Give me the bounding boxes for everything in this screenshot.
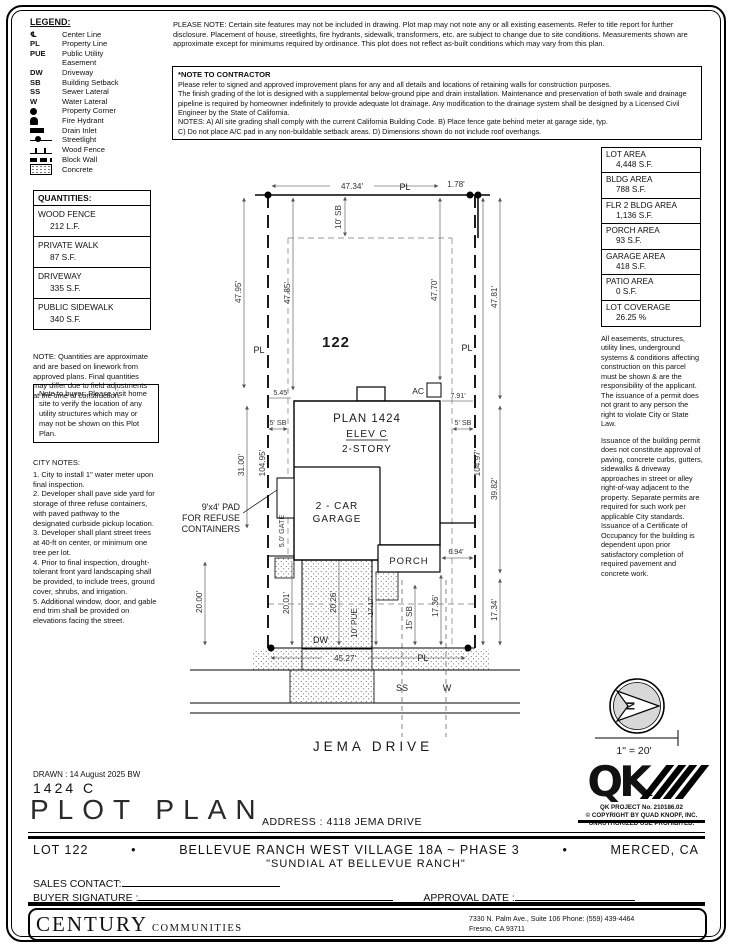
dim-porch-offset: 6.94'	[448, 547, 464, 556]
dim-front-setback-top: 10' SB	[334, 205, 343, 229]
builder-brand: CENTURY COMMUNITIES	[36, 912, 243, 937]
dim-right-mid: 39.82'	[490, 478, 499, 500]
qk-logo-block: QK QK PROJECT No. 210186.02 © COPYRIGHT …	[578, 760, 705, 827]
dim-left-mid: 31.00'	[237, 454, 246, 476]
street-name-label: JEMA DRIVE	[313, 739, 433, 754]
property-corner-dot	[467, 192, 474, 199]
refuse-pad-leader	[243, 490, 277, 513]
property-line-label: PL	[417, 653, 428, 663]
property-line-label: PL	[399, 182, 410, 192]
site-address: ADDRESS : 4118 JEMA DRIVE	[262, 816, 422, 828]
dim-left-offset: 5.45'	[273, 388, 289, 397]
property-line-label: PL	[461, 343, 472, 353]
divider	[28, 836, 705, 839]
north-arrow: N	[610, 679, 664, 733]
sheet-title: PLOT PLAN	[30, 794, 265, 826]
brand-secondary: COMMUNITIES	[152, 923, 243, 934]
lot-number-label: 122	[322, 334, 350, 351]
porch-label: PORCH	[389, 556, 428, 567]
north-label: N	[623, 702, 637, 711]
dim-left-outer: 47.95'	[234, 281, 243, 303]
property-corner-dot	[265, 192, 272, 199]
dim-side-setback-left: 5' SB	[270, 418, 287, 427]
dim-pue: 10' PUE	[350, 608, 359, 638]
dim-drive-width: 20.26'	[329, 591, 338, 613]
driveway-label: DW	[313, 635, 328, 645]
dim-drive-left: 20.01'	[282, 592, 291, 614]
dim-right-outer-top: 47.81'	[490, 286, 499, 308]
dim-gate: 5.0' GATE	[277, 515, 286, 548]
qk-divider	[578, 820, 705, 823]
garage-label: GARAGE	[313, 514, 362, 525]
dim-left-inner: 47.85'	[283, 282, 292, 304]
refuse-pad-label: FOR REFUSE	[182, 513, 240, 523]
refuse-pad-label: 9'x4' PAD	[202, 502, 241, 512]
brand-primary: CENTURY	[36, 912, 148, 937]
refuse-pad	[277, 478, 294, 518]
lot-label: LOT 122	[33, 843, 88, 857]
sales-contact-label: SALES CONTACT:	[33, 878, 122, 890]
city-label: MERCED, CA	[611, 843, 699, 857]
sales-contact-row: SALES CONTACT:	[33, 876, 280, 890]
qk-stripes-icon	[650, 765, 696, 799]
qk-copyright: © COPYRIGHT BY QUAD KNOPF, INC.	[578, 812, 705, 820]
builder-footer: CENTURY COMMUNITIES 7330 N. Palm Ave., S…	[28, 908, 707, 941]
dim-ac-offset: 7.91'	[450, 391, 466, 400]
dim-left-bottom: 20.00'	[195, 591, 204, 613]
divider	[28, 832, 705, 833]
refuse-pad-label: CONTAINERS	[182, 524, 240, 534]
dim-top-width: 47.34'	[341, 182, 363, 191]
plan-name-label: PLAN 1424	[333, 413, 401, 425]
bullet: •	[562, 843, 567, 857]
dim-front-setback: 15' SB	[405, 606, 414, 630]
plot-plan-sheet: LEGEND: ℄Center Line PLProperty Line PUE…	[0, 0, 731, 946]
dim-jog: 1.78'	[447, 180, 465, 189]
dim-right-bottom: 17.34'	[490, 599, 499, 621]
dim-front-right: 17.36'	[431, 595, 440, 617]
property-corner-dot	[268, 645, 275, 652]
approval-date-blank	[515, 890, 635, 901]
builder-address-line: Fresno, CA 93711	[469, 925, 699, 934]
community-name: BELLEVUE RANCH WEST VILLAGE 18A ~ PHASE …	[179, 843, 520, 857]
sales-contact-blank	[122, 876, 280, 887]
scale-bar: 1" = 20'	[595, 730, 678, 757]
buyer-signature-blank	[138, 890, 393, 901]
dim-right-house: 47.70'	[430, 279, 439, 301]
dim-side-setback-right: 5' SB	[455, 418, 472, 427]
water-lateral-label: W	[443, 683, 452, 693]
sewer-lateral-label: SS	[396, 683, 408, 693]
dim-walk: 17.17'	[366, 596, 375, 616]
elevation-label: ELEV C	[346, 429, 388, 440]
builder-address: 7330 N. Palm Ave., Suite 106 Phone: (559…	[469, 915, 699, 933]
divider	[28, 902, 705, 906]
qk-logo: QK	[587, 762, 647, 802]
dim-right-depth: 104.97'	[473, 449, 482, 476]
dim-left-depth: 104.95'	[258, 449, 267, 476]
property-corner-dot	[475, 192, 482, 199]
scale-label: 1" = 20'	[616, 745, 651, 757]
builder-address-line: 7330 N. Palm Ave., Suite 106 Phone: (559…	[469, 915, 699, 924]
story-label: 2-STORY	[342, 444, 392, 455]
property-line-label: PL	[253, 345, 264, 355]
property-corner-dot	[465, 645, 472, 652]
community-subtitle: "SUNDIAL AT BELLEVUE RANCH"	[33, 858, 699, 870]
bullet: •	[131, 843, 136, 857]
drawn-by: DRAWN : 14 August 2025 BW	[33, 770, 140, 779]
ac-pad	[427, 383, 441, 397]
ac-label: AC	[412, 386, 424, 396]
dim-bottom-width: 45.27'	[334, 654, 356, 663]
garage-label: 2 - CAR	[316, 501, 359, 512]
project-strip: LOT 122 • BELLEVUE RANCH WEST VILLAGE 18…	[33, 843, 699, 857]
